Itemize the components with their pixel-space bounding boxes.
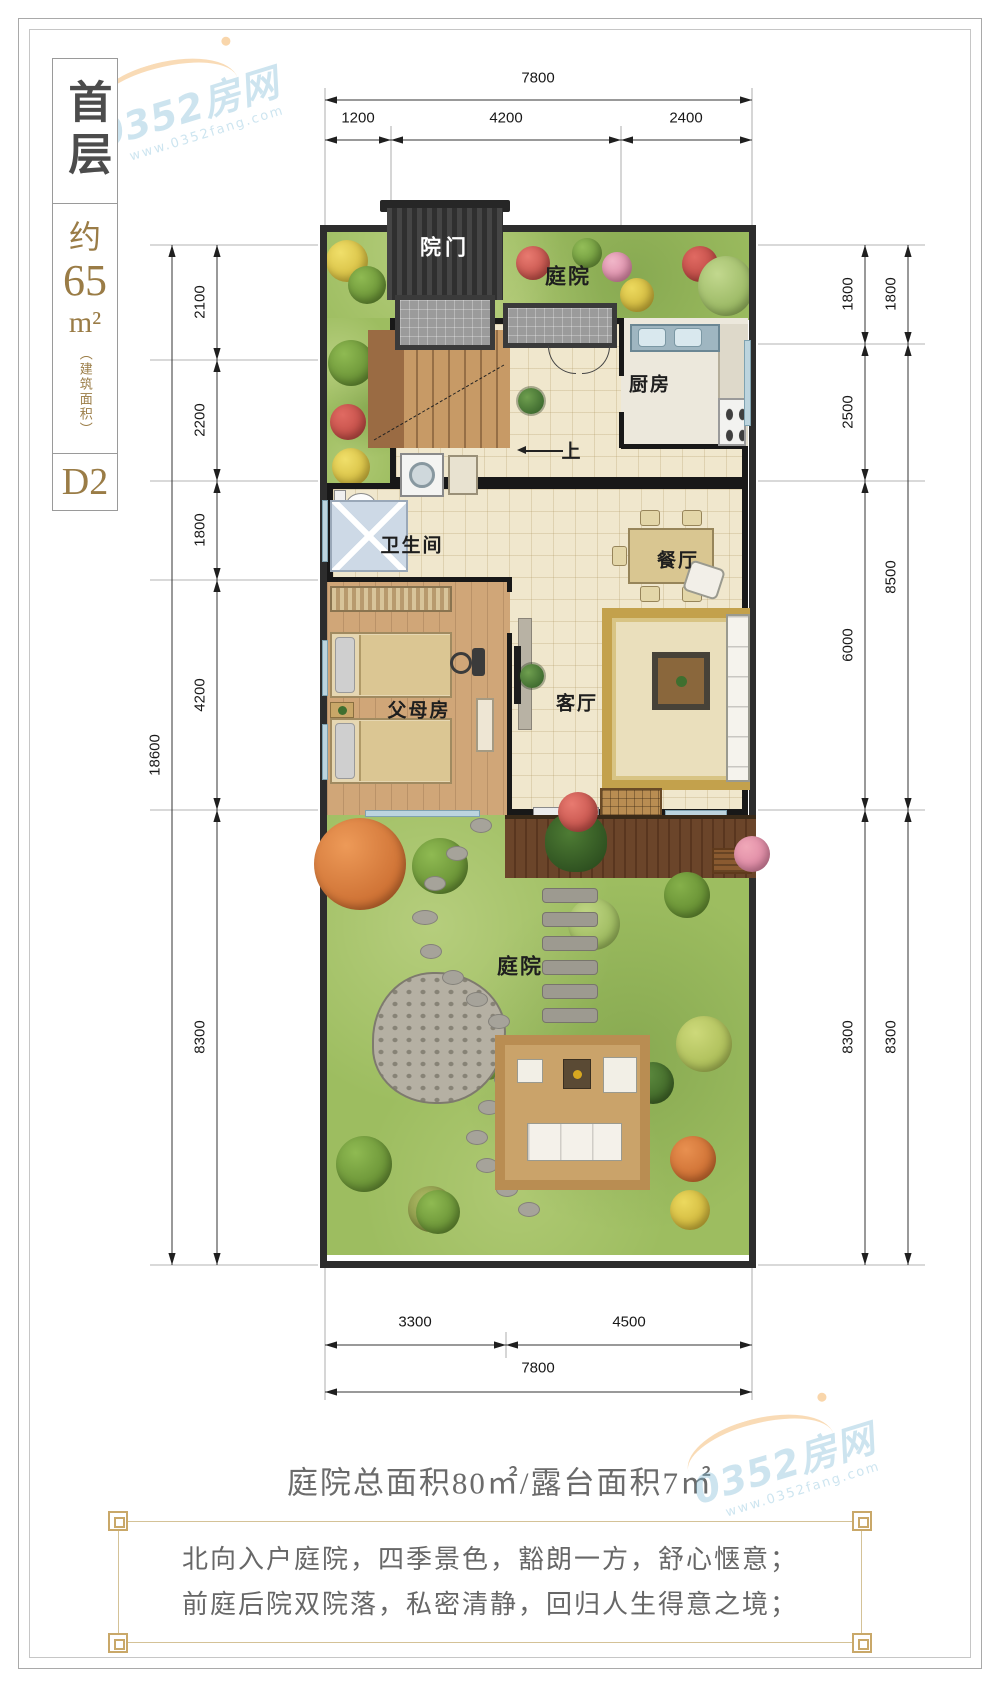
coffee-table — [652, 652, 710, 710]
courtyard-area-summary: 庭院总面积80㎡/露台面积7㎡ — [287, 1468, 713, 1499]
room-label-kitchen: 厨房 — [629, 376, 671, 395]
dim-right-inner-1: 2500 — [841, 395, 856, 428]
bed — [330, 718, 452, 784]
dim-right-inner-0: 1800 — [841, 277, 856, 310]
sofa — [726, 614, 750, 782]
room-label-living: 客厅 — [556, 695, 598, 714]
bedroom-window — [322, 640, 328, 696]
dining-chair — [640, 510, 660, 526]
dining-chair — [612, 546, 627, 566]
floor-plan: 院门 庭院 厨房 上 卫生间 餐厅 父母房 客厅 庭院 — [320, 200, 756, 1268]
blanket — [359, 721, 450, 781]
bedroom-window — [322, 724, 328, 780]
plant-dot — [676, 676, 687, 687]
stepping-stone — [442, 970, 464, 985]
bedroom-wall — [507, 582, 512, 592]
nightstand — [330, 702, 354, 718]
description-frame: 北向入户庭院，四季景色，豁朗一方，舒心惬意； 前庭后院双院落，私密清静，回归人生… — [118, 1521, 862, 1643]
bathroom-window — [322, 500, 328, 562]
dim-left-seg-3: 4200 — [193, 678, 208, 711]
wheelchair-icon — [450, 652, 472, 674]
plant-dot — [338, 706, 347, 715]
stone-step — [542, 984, 598, 999]
stone-step — [542, 936, 598, 951]
stepping-stone — [466, 1130, 488, 1145]
kitchen-sink — [630, 324, 720, 352]
dim-left-seg-1: 2200 — [193, 403, 208, 436]
dim-top-total: 7800 — [521, 71, 554, 86]
pillow — [335, 637, 355, 693]
potted-plant — [518, 388, 544, 414]
dining-chair — [682, 510, 702, 526]
room-label-back-yard: 庭院 — [497, 957, 543, 978]
pavilion-sofa — [527, 1123, 622, 1161]
gate-paving — [395, 295, 495, 350]
stepping-stone — [518, 1202, 540, 1217]
bush — [664, 872, 710, 918]
pavilion-chair — [517, 1059, 543, 1083]
dim-left-seg-2: 1800 — [193, 513, 208, 546]
dim-bottom-total: 7800 — [521, 1361, 554, 1376]
bush — [416, 1190, 460, 1234]
sink-bowl — [638, 328, 666, 347]
room-label-dining: 餐厅 — [657, 552, 699, 571]
bush — [676, 1016, 732, 1072]
description-lines: 北向入户庭院，四季景色，豁朗一方，舒心惬意； 前庭后院双院落，私密清静，回归人生… — [119, 1522, 861, 1642]
room-label-stairs-up: 上 — [561, 443, 582, 462]
bush — [670, 1190, 710, 1230]
kitchen-window — [744, 340, 751, 426]
bedroom-wall — [507, 633, 512, 815]
dim-top-seg-2: 2400 — [669, 111, 702, 126]
dining-chair — [640, 586, 660, 602]
sink-bowl — [674, 328, 702, 347]
dim-right-outer-0: 1800 — [884, 277, 899, 310]
stepping-stone — [420, 944, 442, 959]
dim-right-outer-1: 8500 — [884, 560, 899, 593]
stone-step — [542, 912, 598, 927]
kitchen-wall — [619, 412, 624, 448]
potted-plant — [520, 664, 544, 688]
pillow — [335, 723, 355, 779]
stone-step — [542, 888, 598, 903]
dim-left-seg-4: 8300 — [193, 1020, 208, 1053]
bush — [558, 792, 598, 832]
dim-right-inner-3: 8300 — [841, 1020, 856, 1053]
blanket — [359, 635, 450, 695]
dim-right-inner-2: 6000 — [841, 628, 856, 661]
dim-bottom-seg-0: 3300 — [398, 1315, 431, 1330]
garden-pavilion — [495, 1035, 650, 1190]
bedroom-south-window — [365, 810, 480, 817]
pavilion-table — [563, 1059, 591, 1089]
washer-drum — [409, 462, 435, 488]
bed — [330, 632, 452, 698]
pavilion-bed — [603, 1057, 637, 1093]
stair-arrow-line — [525, 450, 563, 452]
bath-cabinet — [448, 455, 478, 495]
stepping-stone — [466, 992, 488, 1007]
stepping-stone — [412, 910, 438, 925]
entry-paving — [503, 303, 617, 348]
room-label-gate: 院门 — [420, 238, 470, 259]
stepping-stone — [446, 846, 468, 861]
stepping-stone — [488, 1014, 510, 1029]
bush — [314, 818, 406, 910]
dim-left-seg-0: 2100 — [193, 285, 208, 318]
stove — [718, 398, 746, 446]
dim-top-seg-0: 1200 — [341, 111, 374, 126]
description-line: 北向入户庭院，四季景色，豁朗一方，舒心惬意； — [119, 1544, 861, 1575]
wheelchair-seat-icon — [472, 648, 485, 676]
kitchen-wall — [619, 318, 624, 376]
dim-left-total: 18600 — [148, 734, 163, 776]
stone-step — [542, 960, 598, 975]
washing-machine — [400, 453, 444, 497]
dim-right-outer-2: 8300 — [884, 1020, 899, 1053]
stair-arrow-icon — [517, 446, 526, 454]
dim-top-seg-1: 4200 — [489, 111, 522, 126]
floorplan-page: 0352房网 www.0352fang.com 首层 约 65 m² （建筑面积… — [0, 0, 1000, 1687]
room-label-front-yard: 庭院 — [545, 267, 591, 288]
wardrobe — [330, 586, 452, 612]
description-line: 前庭后院双院落，私密清静，回归人生得意之境； — [119, 1589, 861, 1620]
bush — [670, 1136, 716, 1182]
bush — [734, 836, 770, 872]
room-label-bathroom: 卫生间 — [380, 537, 443, 556]
dim-bottom-seg-1: 4500 — [612, 1315, 645, 1330]
stepping-stone — [470, 818, 492, 833]
table-item — [573, 1070, 582, 1079]
bush — [336, 1136, 392, 1192]
stone-step — [542, 1008, 598, 1023]
stepping-stone — [424, 876, 446, 891]
chest — [476, 698, 494, 752]
room-label-parents-room: 父母房 — [387, 702, 450, 721]
